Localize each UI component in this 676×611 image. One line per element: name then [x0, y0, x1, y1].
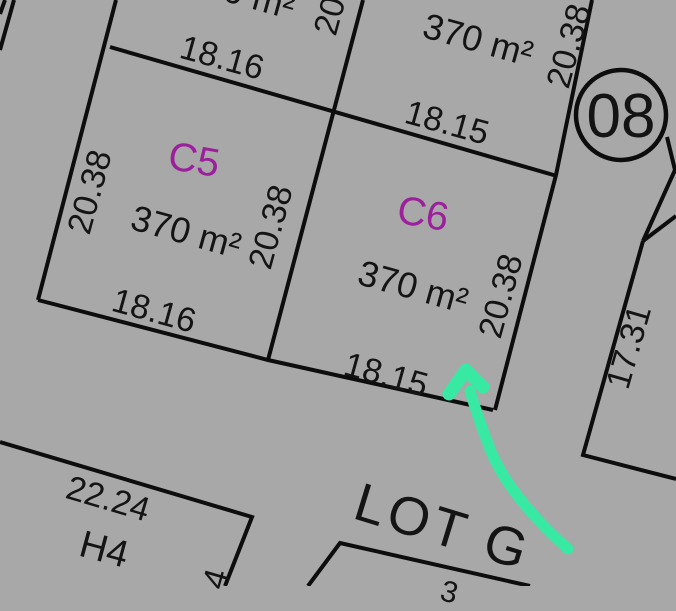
line-c5-left-edge: [38, 0, 116, 300]
line-c5-c6-divider: [268, 0, 363, 360]
lot-label-c6: C6: [394, 190, 451, 238]
plat-map: 18.1618.15370 m²370 m²C5C6370 m²370 m²18…: [0, 0, 676, 586]
line-topleft-corner-b: [0, 0, 5, 14]
lot-label-c5: C5: [165, 136, 222, 184]
block-number: 08: [587, 86, 656, 148]
